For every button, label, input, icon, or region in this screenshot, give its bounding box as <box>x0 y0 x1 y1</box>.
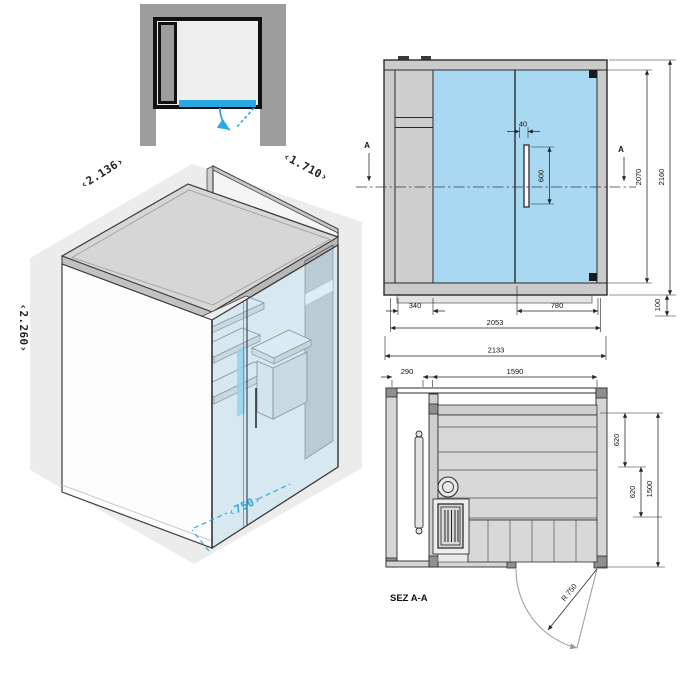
front-elevation-view: A A 40 600 2070 <box>356 56 676 360</box>
section-marker-left-label: A <box>364 141 370 150</box>
bottom-rail <box>384 283 607 295</box>
door-open-dashed <box>236 108 254 128</box>
dim-overall-width: 2133 <box>385 336 606 360</box>
section-marker-left: A <box>364 141 370 181</box>
niche-installation-icon <box>140 4 286 146</box>
plan-left-wall <box>386 388 397 567</box>
dim-door-width-label: 780 <box>551 301 564 310</box>
dim-handle-offset-label: 40 <box>519 120 527 129</box>
door-hinge-top <box>589 70 597 78</box>
dim-tech-width: 290 <box>381 367 434 387</box>
tech-compartment <box>160 24 176 103</box>
isometric-view: ‹2.136› ‹1.710› ‹2.260› ‹750› <box>17 150 362 564</box>
dim-door-radius-label: R 750 <box>559 582 579 603</box>
heater-plan <box>433 499 469 554</box>
dim-left-panel-width-label: 340 <box>409 301 422 310</box>
dim-room-depth: 1500 <box>645 413 658 567</box>
plumbing-pipe <box>415 431 423 534</box>
glass-front-strip <box>179 100 256 107</box>
room-left-wall-block-top <box>429 404 438 414</box>
door-hinge-bottom <box>589 273 597 281</box>
vent-valve <box>438 477 458 497</box>
door-swing-arc <box>220 108 230 130</box>
room-left-wall-block-bottom <box>429 556 438 567</box>
back-wall-band <box>438 405 597 415</box>
dim-room-width-label: 1590 <box>507 367 524 376</box>
dim-base-height-label: 100 <box>653 299 662 312</box>
plan-right-wall-block-top <box>596 388 607 398</box>
section-plan-view: 290 1590 <box>381 367 665 648</box>
section-title: SEZ A-A <box>390 593 428 604</box>
dim-bench-depth-upper-label: 620 <box>612 434 621 447</box>
technical-drawing: ‹2.136› ‹1.710› ‹2.260› ‹750› A <box>0 0 700 700</box>
left-panel <box>395 70 433 283</box>
dim-bench-depth-upper: 620 <box>600 413 663 467</box>
door-swing-arc-plan <box>516 569 577 648</box>
dim-body-width-label: 2053 <box>487 318 504 327</box>
left-outer-strip <box>384 70 395 283</box>
dim-tech-width-label: 290 <box>401 367 414 376</box>
section-marker-right: A <box>618 145 624 181</box>
dim-room-depth-label: 1500 <box>645 481 654 498</box>
plan-left-wall-block-top <box>386 388 397 397</box>
dim-base-height: 100 <box>653 295 676 316</box>
door-handle <box>524 145 529 207</box>
plan-right-wall <box>596 388 607 567</box>
dim-room-width: 1590 <box>433 367 598 387</box>
iso-depth-label: ‹1.710› <box>281 150 331 185</box>
dim-glass-height-label: 2070 <box>634 169 643 186</box>
right-outer-strip <box>597 70 607 283</box>
door-open-leaf <box>577 569 597 648</box>
dim-bench-depth-lower-label: 620 <box>628 486 637 499</box>
dim-handle-length-label: 600 <box>537 170 546 183</box>
dim-overall-height-label: 2160 <box>657 169 666 186</box>
top-cap <box>384 60 607 70</box>
iso-width-label: ‹2.136› <box>78 154 127 191</box>
section-marker-right-label: A <box>618 145 624 154</box>
technical-drawing-page: ‹2.136› ‹1.710› ‹2.260› ‹750› A <box>0 0 700 700</box>
dim-overall-width-label: 2133 <box>488 346 505 355</box>
door-swing: R 750 <box>516 569 597 648</box>
iso-height-label: ‹2.260› <box>17 303 30 352</box>
